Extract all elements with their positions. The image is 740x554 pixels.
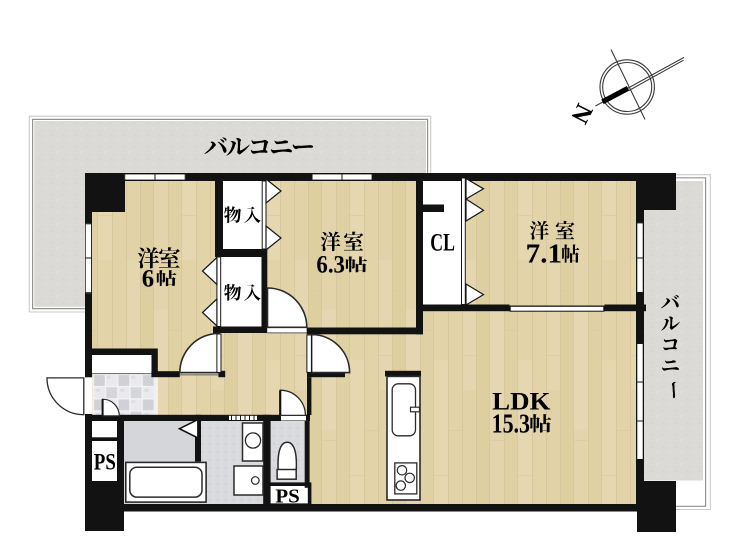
svg-text:6: 6: [142, 266, 154, 293]
svg-text:PS: PS: [94, 450, 116, 476]
svg-text:15.3: 15.3: [492, 407, 530, 438]
svg-text:6.3: 6.3: [316, 251, 345, 278]
svg-text:CL: CL: [430, 228, 455, 257]
svg-text:7.1: 7.1: [526, 238, 562, 269]
svg-text:N: N: [565, 99, 597, 127]
svg-text:PS: PS: [275, 485, 299, 507]
